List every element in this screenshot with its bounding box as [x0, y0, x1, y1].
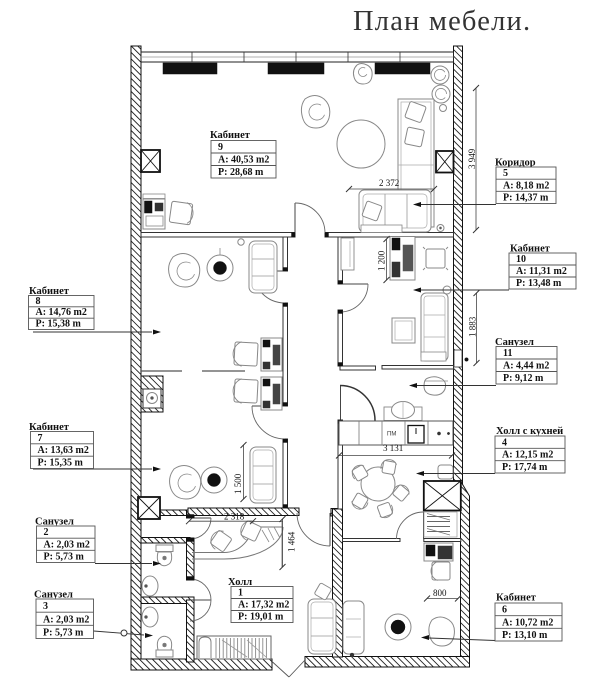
svg-text:A: 8,18 m2: A: 8,18 m2	[503, 180, 549, 191]
svg-text:2: 2	[44, 527, 49, 538]
svg-text:A: 2,03 m2: A: 2,03 m2	[43, 614, 89, 625]
svg-text:2 372: 2 372	[379, 178, 399, 188]
svg-text:P: 5,73 m: P: 5,73 m	[44, 552, 85, 563]
svg-text:P: 17,74 m: P: 17,74 m	[502, 462, 548, 473]
svg-text:P: 5,73 m: P: 5,73 m	[43, 628, 84, 639]
svg-text:A: 17,32 m2: A: 17,32 m2	[238, 600, 289, 611]
svg-text:1 200: 1 200	[377, 250, 387, 271]
svg-text:A: 2,03 m2: A: 2,03 m2	[44, 539, 90, 550]
svg-text:3: 3	[43, 601, 48, 612]
svg-text:P: 15,35 m: P: 15,35 m	[38, 458, 84, 469]
svg-text:ПМ: ПМ	[387, 432, 396, 438]
svg-text:8: 8	[36, 296, 41, 307]
svg-text:P: 19,01 m: P: 19,01 m	[238, 612, 284, 623]
svg-text:5: 5	[503, 168, 508, 179]
svg-text:6: 6	[502, 605, 507, 616]
svg-text:A: 14,76 m2: A: 14,76 m2	[36, 307, 87, 318]
svg-text:P: 13,48 m: P: 13,48 m	[516, 278, 562, 289]
svg-text:A: 13,63 m2: A: 13,63 m2	[38, 445, 89, 456]
svg-text:1 883: 1 883	[468, 316, 478, 337]
svg-text:3 131: 3 131	[383, 443, 403, 453]
svg-text:P: 9,12 m: P: 9,12 m	[503, 373, 544, 384]
svg-text:P: 13,10 m: P: 13,10 m	[502, 630, 548, 641]
svg-text:2 318: 2 318	[224, 512, 245, 522]
svg-text:3 949: 3 949	[467, 148, 477, 169]
svg-text:Кабинет: Кабинет	[210, 130, 251, 141]
svg-text:A: 40,53 m2: A: 40,53 m2	[218, 155, 269, 166]
svg-text:800: 800	[433, 588, 447, 598]
svg-text:9: 9	[218, 142, 223, 153]
svg-text:A: 4,44 m2: A: 4,44 m2	[503, 361, 549, 372]
svg-text:Кабинет: Кабинет	[496, 593, 537, 604]
svg-text:1 464: 1 464	[287, 531, 297, 552]
svg-text:1 500: 1 500	[233, 473, 243, 494]
svg-text:A: 12,15 m2: A: 12,15 m2	[502, 450, 553, 461]
svg-text:P: 14,37 m: P: 14,37 m	[503, 193, 549, 204]
svg-text:A: 10,72 m2: A: 10,72 m2	[502, 617, 553, 628]
svg-text:11: 11	[503, 348, 512, 359]
svg-text:A: 11,31 m2: A: 11,31 m2	[516, 266, 567, 277]
svg-text:План мебели.: План мебели.	[353, 6, 531, 37]
svg-text:Холл с кухней: Холл с кухней	[496, 426, 563, 437]
svg-text:10: 10	[516, 254, 526, 265]
svg-text:P: 15,38 m: P: 15,38 m	[36, 319, 82, 330]
svg-text:4: 4	[502, 437, 507, 448]
svg-text:1: 1	[238, 588, 243, 599]
svg-text:P: 28,68 m: P: 28,68 m	[218, 167, 264, 178]
svg-text:7: 7	[38, 433, 43, 444]
